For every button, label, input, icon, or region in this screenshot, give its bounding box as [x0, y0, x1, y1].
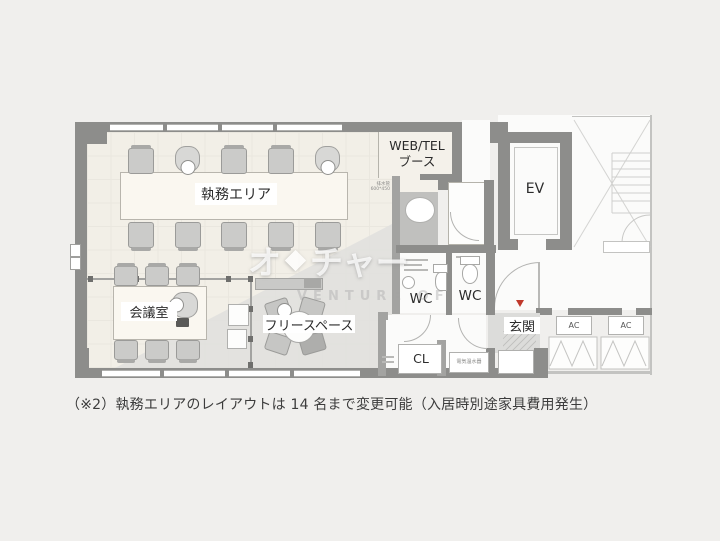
toilet-icon	[462, 264, 478, 284]
chair	[114, 266, 138, 286]
label-meeting-room: 会議室	[121, 302, 177, 321]
water-heater-box: 電気温水器	[449, 352, 489, 373]
window-tick	[218, 123, 222, 131]
chair	[128, 148, 154, 174]
meeting-room-text: 会議室	[129, 302, 168, 321]
label-elevator: EV	[520, 180, 550, 198]
stairs-icon	[572, 115, 652, 250]
chair	[114, 340, 138, 360]
label-wc-right: WC	[455, 288, 485, 304]
label-closet: CL	[408, 350, 434, 366]
floorplan-canvas: EV 玄関 AC AC	[0, 0, 720, 541]
window-tick	[225, 369, 229, 377]
sink-icon	[405, 197, 435, 223]
window-tick	[163, 123, 167, 131]
partition	[250, 278, 252, 368]
ac-text: AC	[569, 321, 580, 330]
closet-note-bar	[382, 361, 394, 363]
ev-wall	[560, 132, 572, 250]
window-tick	[160, 369, 164, 377]
booth-text-line1: WEB/TEL	[389, 138, 445, 154]
partition-post	[248, 362, 253, 368]
elevator-text: EV	[526, 181, 544, 197]
shoe-cabinet	[498, 350, 534, 374]
ev-door-gap	[518, 239, 546, 250]
wall	[486, 245, 495, 315]
chair	[176, 266, 200, 286]
chair	[175, 222, 201, 248]
balcony-bottom-line	[548, 371, 652, 374]
partition-post	[248, 276, 253, 282]
spec-note-bar	[404, 259, 428, 261]
partition-post	[226, 276, 231, 282]
wc-sink-icon	[402, 276, 415, 289]
partition-post	[88, 276, 93, 282]
person-figure	[315, 146, 340, 172]
chair	[221, 222, 247, 248]
spec-note-bar	[404, 269, 428, 271]
window-tick	[273, 123, 277, 131]
person-head	[180, 160, 195, 175]
free-space-text: フリースペース	[265, 315, 354, 334]
booth-text-line2: ブース	[399, 154, 436, 170]
drain-note-line2: 600*450	[368, 188, 390, 193]
toilet-icon	[435, 272, 447, 291]
drain-note: 排水管 600*450	[368, 183, 390, 193]
ac-unit-label: AC	[608, 316, 644, 335]
label-wc-left: WC	[406, 291, 436, 307]
cabinet-dark	[304, 278, 321, 288]
chair	[145, 340, 169, 360]
wall	[378, 318, 386, 376]
partition-post	[248, 336, 253, 342]
entrance-text: 玄関	[509, 316, 535, 335]
ac-unit-label: AC	[556, 316, 592, 335]
window-band-bottom	[102, 370, 360, 377]
wc-text: WC	[410, 291, 433, 307]
ev-wall	[498, 132, 510, 250]
window-tick	[290, 369, 294, 377]
chair	[268, 148, 294, 174]
ac-louver-icon	[548, 336, 598, 370]
closet-text: CL	[413, 351, 429, 366]
wall	[484, 180, 494, 245]
window-band-top	[110, 124, 342, 131]
label-free-space: フリースペース	[263, 315, 355, 333]
chair	[221, 148, 247, 174]
chair	[128, 222, 154, 248]
caption-note: （※2）執務エリアのレイアウトは 14 名まで変更可能（入居時別途家具費用発生）	[66, 394, 597, 414]
ac-text: AC	[621, 321, 632, 330]
water-heater-text: 電気温水器	[456, 360, 481, 366]
wall-corner-bl	[75, 348, 89, 378]
spec-note-bar	[404, 264, 422, 266]
wall	[534, 348, 548, 376]
side-table	[228, 304, 249, 326]
chair	[176, 340, 200, 360]
label-entrance: 玄関	[504, 317, 540, 334]
wall	[636, 308, 652, 315]
person-head	[320, 160, 335, 175]
ac-louver-icon	[600, 336, 650, 370]
entrance-marker-icon	[516, 300, 524, 307]
chair	[268, 222, 294, 248]
closet-note-bar	[382, 356, 394, 358]
side-table	[227, 329, 247, 349]
wall-top-right	[342, 122, 462, 132]
laptop-icon	[176, 318, 189, 327]
chair	[315, 222, 341, 248]
chair	[145, 266, 169, 286]
wc-top-wall	[396, 245, 496, 253]
label-work-area: 執務エリア	[195, 183, 277, 205]
label-web-tel-booth: WEB/TEL ブース	[380, 137, 454, 171]
entrance-door-leaf	[538, 262, 540, 308]
window	[70, 257, 81, 270]
person-figure	[175, 146, 200, 172]
window	[70, 244, 81, 257]
work-area-text: 執務エリア	[201, 184, 271, 204]
stair-landing	[603, 241, 650, 253]
wc-text: WC	[459, 288, 482, 304]
wall	[568, 308, 622, 315]
